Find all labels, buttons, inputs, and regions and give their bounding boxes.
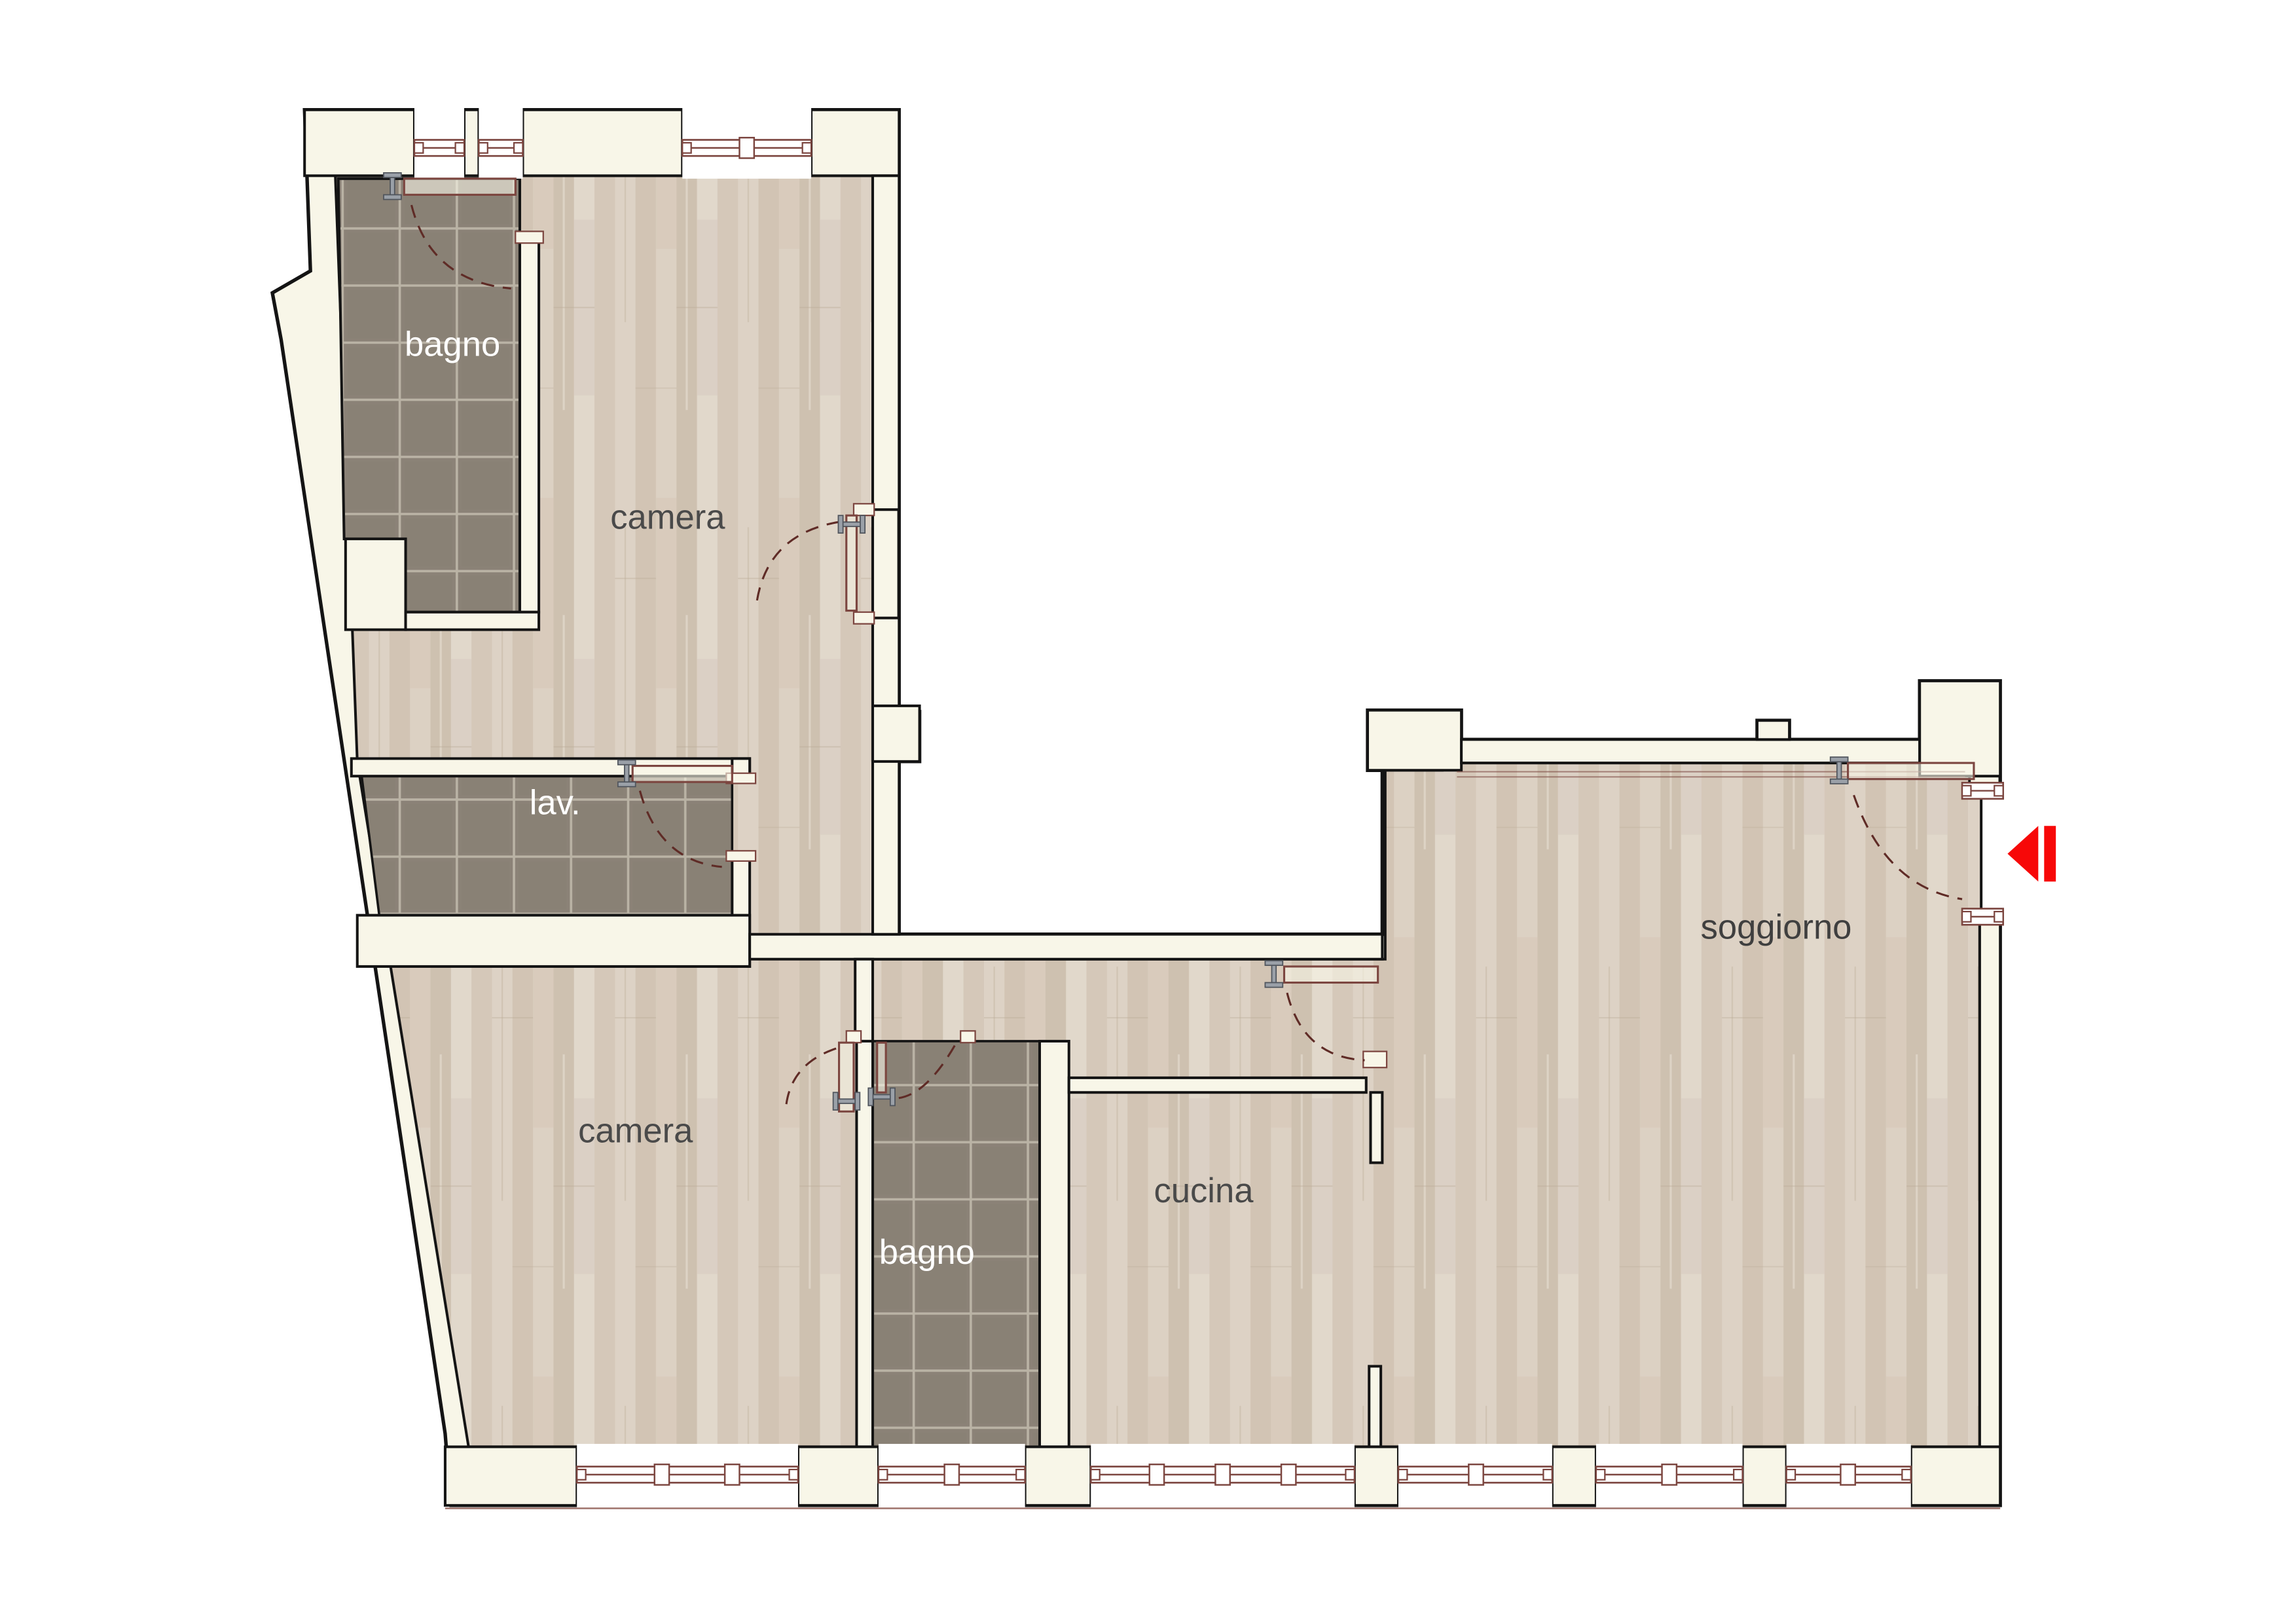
window-symbol [1596, 1464, 1743, 1485]
door-leaf [404, 179, 515, 195]
wall-segment [464, 110, 479, 176]
wall-segment [1743, 1447, 1787, 1505]
room-label-lav: lav. [530, 783, 581, 822]
door-jamb [726, 851, 756, 861]
door-leaf [847, 515, 857, 610]
wall-segment [1370, 1092, 1382, 1162]
window-symbol [1787, 1464, 1911, 1485]
entrance-arrow-triangle [2007, 826, 2038, 881]
window-symbol [479, 140, 522, 157]
wall-segment [1980, 911, 2000, 1447]
room-label-camera-south: camera [578, 1111, 693, 1150]
wall-segment [520, 239, 539, 612]
wall-segment [1025, 1447, 1091, 1505]
wall-segment [811, 110, 899, 176]
door-leaf [1285, 967, 1378, 983]
wall-segment [873, 175, 899, 509]
wall-segment [1069, 1078, 1366, 1092]
wall-segment [1369, 1366, 1381, 1447]
wall-segment [304, 110, 414, 176]
door-jamb [847, 1031, 861, 1043]
wall-segment [1920, 681, 2000, 776]
wall-segment [445, 1447, 577, 1505]
door-jamb [960, 1031, 975, 1043]
window-symbol [577, 1464, 798, 1485]
window-symbol [1962, 783, 2003, 799]
wall-segment [1461, 739, 1920, 763]
door-jamb [854, 504, 874, 515]
wall-segment [873, 706, 920, 762]
window-symbol [414, 140, 464, 157]
entrance-arrow-bar [2044, 826, 2056, 881]
window-symbol [1962, 909, 2003, 925]
wall-segment [406, 612, 539, 630]
window-symbol [682, 138, 811, 158]
room-label-camera-north: camera [610, 498, 725, 536]
wall-segment [873, 618, 899, 934]
room-label-cucina: cucina [1154, 1172, 1254, 1210]
wall-segment [798, 1447, 879, 1505]
floor-plan: bagno camera lav. camera bagno cucina so… [0, 0, 2296, 1624]
door-jamb [854, 612, 874, 624]
door-leaf [1848, 763, 1974, 779]
window-symbol [879, 1464, 1025, 1485]
door-leaf [632, 766, 732, 783]
wall-segment [522, 110, 682, 176]
window-symbol [1398, 1464, 1552, 1485]
entrance-arrow-icon [2007, 826, 2056, 881]
wall-segment [1355, 1447, 1398, 1505]
wall-segment [346, 539, 406, 630]
wall-segment [357, 915, 750, 967]
room-label-bagno-north: bagno [405, 325, 500, 363]
door-jamb [1363, 1052, 1387, 1068]
door-jamb [515, 231, 543, 243]
wall-segment [1040, 1041, 1069, 1447]
room-label-bagno-south: bagno [879, 1233, 975, 1272]
door-leaf [877, 1043, 886, 1092]
wall-segment [855, 959, 873, 1041]
wall-segment [1552, 1447, 1596, 1505]
wall-segment [1911, 1447, 2000, 1505]
wall-segment [1757, 720, 1789, 739]
room-label-soggiorno: soggiorno [1701, 908, 1852, 946]
window-symbol [1091, 1464, 1355, 1485]
wall-segment [1368, 710, 1461, 771]
wall-segment [750, 934, 1382, 959]
